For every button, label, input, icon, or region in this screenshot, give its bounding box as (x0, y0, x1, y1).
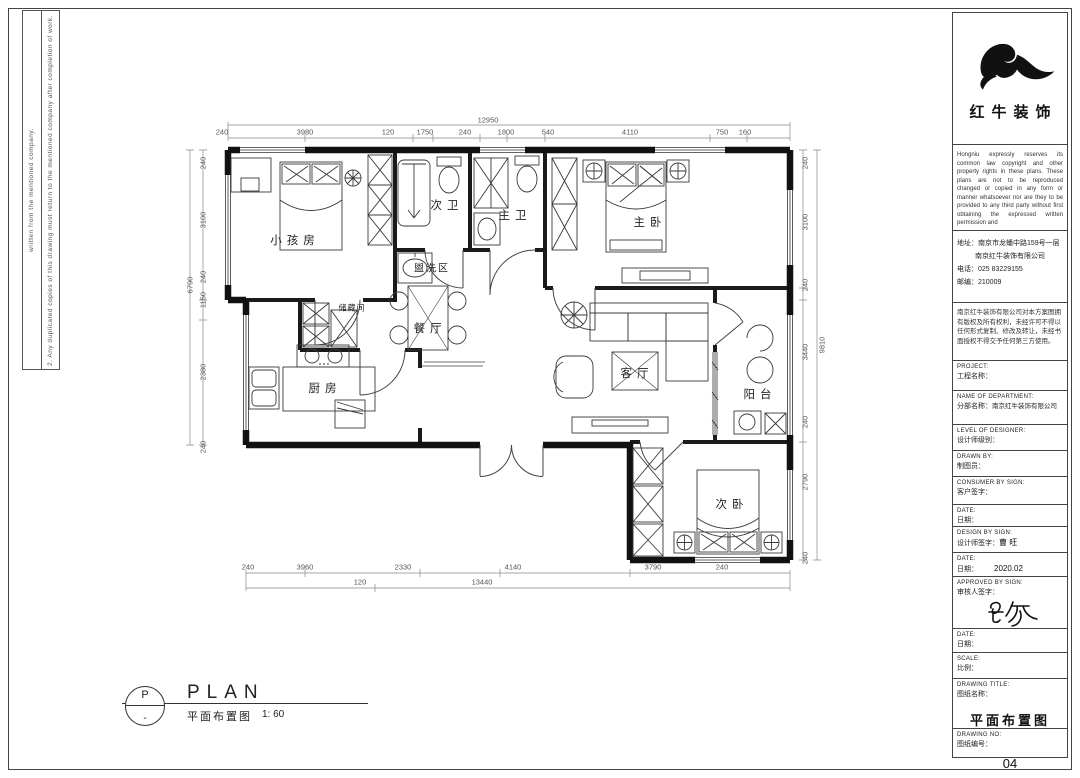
field-approved-sign: APPROVED BY SIGN:审核人签字： (953, 577, 1067, 629)
drawing-sheet: written from the mentioned company. 2. A… (0, 0, 1080, 778)
designer-name: 曹 旺 (999, 538, 1017, 547)
field-drawing-no: DRAWING NO:图纸编号： 04 (953, 729, 1067, 769)
company-address: 地址：南京市龙蟠中路159号一层 (957, 237, 1063, 250)
dim-right: 3100 (801, 214, 810, 231)
disclaimer-english: Hongniu expressly reserves its common la… (953, 145, 1067, 231)
left-note-line1: written from the mentioned company. (23, 11, 41, 369)
dim-bottom: 240 (716, 563, 729, 572)
plan-marker: P - (125, 686, 165, 726)
plan-subtitle: 平面布置图 (187, 708, 252, 724)
left-note-line2: 2. Any duplicated copies of this drawing… (42, 11, 60, 369)
logo-cell: 红牛装饰 (953, 13, 1067, 145)
field-project: PROJECT:工程名称： (953, 361, 1067, 391)
field-date-3: DATE:日期： (953, 629, 1067, 653)
dim-right: 2790 (801, 474, 810, 491)
dim-right: 240 (801, 552, 810, 565)
dim-right: 3440 (801, 344, 810, 361)
room-label-kids: 小孩房 (270, 232, 320, 248)
dim-top: 750 (716, 128, 729, 137)
company-name: 南京红牛装饰有限公司 (957, 250, 1063, 263)
dim-right: 240 (801, 416, 810, 429)
drawing-no-value: 04 (957, 756, 1063, 769)
dim-bottom-sub: 120 (354, 578, 367, 587)
plan-scale: 1: 60 (262, 709, 284, 720)
plan-marker-number: - (126, 713, 164, 724)
dim-top: 120 (382, 128, 395, 137)
room-label-bed2: 次卧 (716, 496, 749, 512)
logo-bull-icon (962, 35, 1058, 97)
room-label-master: 主卧 (634, 214, 667, 230)
drawing-title-value: 平面布置图 (957, 710, 1063, 729)
dim-bottom: 2330 (395, 563, 412, 572)
title-block: 红牛装饰 Hongniu expressly reserves its comm… (952, 12, 1068, 758)
design-date-value: 2020.02 (978, 564, 1023, 573)
dim-left: 240 (199, 441, 208, 454)
dim-left-total: 6790 (186, 277, 195, 294)
dim-left: 1150 (199, 292, 208, 308)
company-contact: 地址：南京市龙蟠中路159号一层 南京红牛装饰有限公司 电话：025 83229… (953, 231, 1067, 303)
field-consumer-sign: CONSUMER BY SIGN:客户签字： (953, 477, 1067, 505)
dim-bottom: 4140 (505, 563, 522, 572)
dim-top: 540 (542, 128, 555, 137)
room-label-wash: 盥洗区 (414, 260, 450, 275)
room-label-storage: 储藏间 (339, 303, 366, 314)
field-department: NAME OF DEPARTMENT: 分部名称：南京红牛装饰有限公司 (953, 391, 1067, 425)
field-design-sign: DESIGN BY SIGN: 设计师签字：曹 旺 (953, 527, 1067, 553)
plan-title: PLAN (187, 682, 265, 704)
left-note-strip: written from the mentioned company. 2. A… (22, 10, 60, 370)
room-label-dining: 餐厅 (414, 320, 447, 336)
wardrobe-kids (368, 155, 392, 245)
dim-top: 1750 (417, 128, 434, 137)
dim-top-total: 12950 (478, 116, 499, 125)
dimension-lines (186, 122, 821, 592)
room-label-kitchen: 厨房 (309, 380, 342, 396)
dim-top: 160 (739, 128, 752, 137)
field-drawing-title: DRAWING TITLE:图纸名称： 平面布置图 (953, 679, 1067, 729)
logo-text: 红牛装饰 (969, 101, 1057, 122)
wardrobe-bed2 (633, 448, 663, 556)
dim-left: 2380 (199, 364, 208, 381)
dim-right-total: 9810 (818, 337, 827, 354)
dim-left: 240 (199, 271, 208, 284)
floor-plan-drawing (185, 100, 865, 620)
dim-right: 240 (801, 279, 810, 292)
dim-right: 240 (801, 157, 810, 170)
dim-bottom: 3790 (645, 563, 662, 572)
field-drawn-by: DRAWN BY:制图员： (953, 451, 1067, 477)
dim-top: 1800 (498, 128, 515, 137)
dim-bottom: 240 (242, 563, 255, 572)
room-label-balcony: 阳台 (744, 386, 777, 402)
dim-top: 240 (459, 128, 472, 137)
company-phone: 电话：025 83229155 (957, 263, 1063, 276)
interior-walls (228, 150, 790, 445)
room-label-bath1: 主卫 (499, 207, 532, 223)
dim-left: 3100 (199, 212, 208, 229)
field-scale: SCALE:比例： (953, 653, 1067, 679)
dim-top: 3980 (297, 128, 314, 137)
approver-signature (985, 598, 1045, 628)
field-date-1: DATE:日期： (953, 505, 1067, 527)
dim-bottom-total: 13440 (472, 578, 493, 587)
dim-left: 240 (199, 157, 208, 170)
dim-bottom: 3960 (297, 563, 314, 572)
field-date-2: DATE: 日期：2020.02 (953, 553, 1067, 577)
company-postcode: 邮编：210009 (957, 276, 1063, 289)
dim-top: 240 (216, 128, 229, 137)
room-label-bath2: 次卫 (431, 197, 464, 213)
dim-top: 4110 (622, 128, 638, 137)
plan-marker-letter: P (126, 689, 164, 701)
room-label-living: 客厅 (621, 365, 654, 381)
disclaimer-chinese: 南京红牛装饰有限公司对本方案图拥有版权及所有权利，未经许可不得以任何形式复制、修… (953, 303, 1067, 361)
department-value: 南京红牛装饰有限公司 (992, 403, 1057, 410)
field-designer-level: LEVEL OF DESIGNER:设计师级别： (953, 425, 1067, 451)
wardrobe-master (552, 158, 577, 250)
